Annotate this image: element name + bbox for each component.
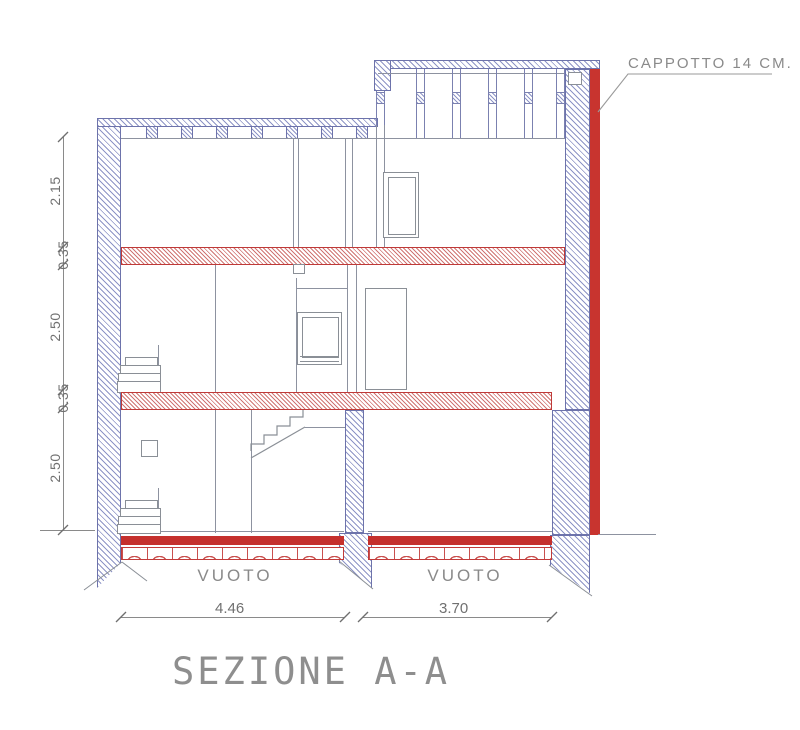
dimension-label-035a: 0.35	[55, 233, 71, 277]
floor-slab-second	[121, 392, 552, 410]
void-label-left: VUOTO	[195, 566, 275, 586]
dimension-label-370: 3.70	[432, 600, 475, 617]
partition-line	[293, 139, 294, 247]
roof-slab-left	[97, 118, 378, 127]
partition-line	[345, 139, 346, 247]
partition-line	[352, 139, 353, 247]
ground-slab-left	[121, 536, 344, 545]
roof-joist	[524, 69, 533, 138]
stair-step	[117, 524, 161, 534]
window-sill	[300, 356, 339, 362]
roof-parapet-wall	[374, 60, 391, 91]
crawlspace-arches-right	[368, 547, 552, 560]
window-middle-floor	[297, 312, 342, 365]
cappotto-insulation-strip	[590, 69, 600, 535]
roof-joist	[251, 127, 263, 138]
dimension-label-035b: 0.35	[55, 376, 71, 420]
insulation-annotation: CAPPOTTO 14 CM.	[628, 55, 793, 72]
joist-blocking	[417, 92, 424, 104]
window-upper-floor	[383, 172, 419, 238]
void-label-right: VUOTO	[425, 566, 505, 586]
roof-joist	[556, 69, 565, 138]
stair-landing-line	[305, 427, 345, 428]
door-opening	[365, 288, 407, 390]
right-foundation	[550, 535, 590, 593]
dimension-chain-left	[63, 137, 64, 530]
roof-underline-right	[378, 73, 565, 74]
grade-line-right	[598, 534, 656, 535]
roof-joist	[146, 127, 158, 138]
lintel-line	[296, 288, 347, 289]
partition-line	[215, 265, 216, 392]
roof-joist	[286, 127, 298, 138]
roof-slab-right	[375, 60, 600, 69]
stair-soffit-line	[251, 427, 305, 458]
right-exterior-wall-upper	[565, 69, 590, 410]
joist-blocking	[489, 92, 496, 104]
partition-line	[356, 265, 357, 392]
dimension-label-250b: 2.50	[47, 446, 63, 490]
crawlspace-arches-left	[121, 547, 344, 560]
roof-joist	[181, 127, 193, 138]
partition-line	[347, 265, 348, 392]
right-exterior-wall-lower	[552, 410, 590, 535]
window-inner-frame	[388, 177, 416, 235]
dimension-line-bottom-right	[363, 617, 552, 618]
roof-joist	[356, 127, 368, 138]
partition-line	[251, 410, 252, 533]
joist-blocking	[453, 92, 460, 104]
roof-joist	[452, 69, 461, 138]
partition-line	[376, 125, 377, 247]
partition-line	[215, 410, 216, 533]
dimension-label-250a: 2.50	[47, 305, 63, 349]
floor-finish-line-right	[368, 531, 552, 532]
roof-joist	[216, 127, 228, 138]
roof-joist	[416, 69, 425, 138]
dimension-extension-line	[40, 530, 95, 531]
leader-line	[598, 74, 772, 112]
beam-notch	[293, 264, 305, 274]
dimension-label-215: 2.15	[47, 169, 63, 213]
dimension-line-bottom-left	[121, 617, 345, 618]
wall-niche	[141, 440, 158, 457]
partition-line	[298, 139, 299, 247]
section-drawing: CAPPOTTO 14 CM. VUOTO VUOTO 2.15 0.35 2.…	[0, 0, 800, 730]
stair-zigzag	[251, 410, 303, 451]
ceiling-line	[121, 138, 565, 139]
roof-beam	[568, 72, 582, 85]
window-inner-frame	[302, 317, 339, 358]
middle-wall-ground-floor	[345, 410, 364, 533]
joist-blocking	[557, 92, 564, 104]
ground-slab-right	[368, 536, 552, 545]
roof-joist	[321, 127, 333, 138]
joist-blocking	[377, 92, 384, 104]
dimension-label-446: 4.46	[208, 600, 251, 617]
section-title: SEZIONE A-A	[172, 650, 450, 693]
roof-joist	[488, 69, 497, 138]
floor-slab-first	[121, 247, 565, 265]
joist-blocking	[525, 92, 532, 104]
